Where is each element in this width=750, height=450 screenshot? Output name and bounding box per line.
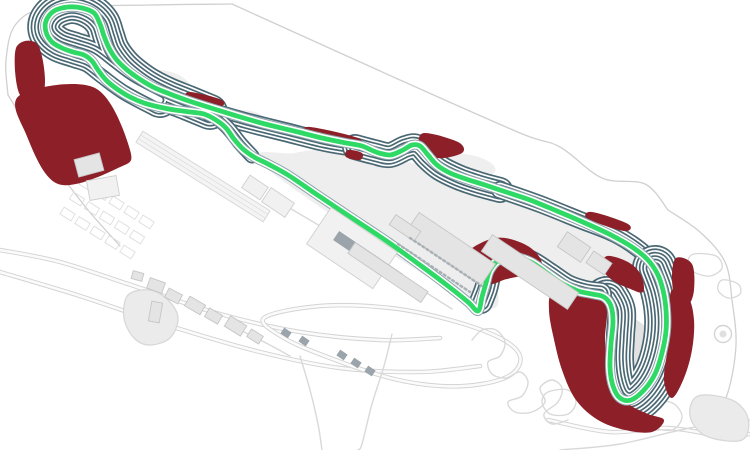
east-ring-inner: [720, 331, 727, 338]
circuit-map: [0, 0, 750, 450]
circuit-svg: [0, 0, 750, 450]
